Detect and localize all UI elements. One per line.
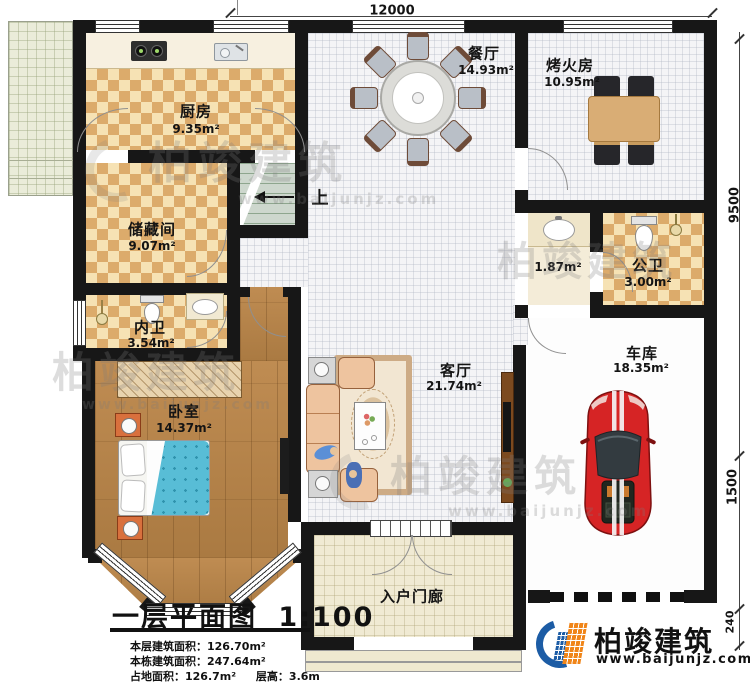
dimension-line-top — [230, 16, 712, 17]
leader-line — [237, 0, 238, 15]
dimension-line-right — [739, 32, 740, 650]
wall — [528, 590, 550, 603]
sofa — [306, 384, 340, 474]
area-info: 本层建筑面积：126.70m² 本栋建筑面积：247.64m² 占地面积：126… — [130, 639, 320, 684]
window — [95, 20, 140, 33]
room-label-private-bath: 内卫 — [134, 321, 166, 336]
window — [213, 20, 289, 33]
bedroom-tv — [280, 438, 289, 494]
chair — [458, 87, 486, 109]
dimension-top: 12000 — [369, 4, 414, 19]
chair — [628, 140, 654, 165]
room-label-living: 客厅 — [440, 364, 472, 379]
wall — [590, 292, 603, 305]
lamp-icon — [315, 476, 330, 491]
dimension-right-lower: 240 — [724, 611, 737, 634]
lamp-icon — [123, 521, 139, 537]
wall — [473, 637, 513, 650]
room-area-bedroom: 14.37m² — [156, 422, 212, 434]
dimension-tick — [707, 8, 718, 19]
chair — [350, 87, 378, 109]
room-label-kitchen: 厨房 — [180, 105, 212, 120]
room-area-fire-room: 10.95m² — [544, 76, 600, 88]
terrace-step-line — [8, 178, 73, 179]
room-area-garage: 18.35m² — [613, 362, 669, 374]
area-info-line3a: 占地面积：126.7m² — [130, 670, 236, 683]
window — [563, 20, 673, 33]
shower-head-icon — [96, 313, 108, 325]
coffee-table — [354, 402, 386, 450]
wall — [515, 305, 528, 318]
wall — [704, 33, 717, 603]
room-area-storage: 9.07m² — [128, 240, 175, 252]
room-label-porch: 入户门廊 — [380, 590, 444, 605]
watermark-subtext: www.baijunjz.com — [448, 504, 649, 519]
chair — [407, 32, 429, 60]
fire-room-table — [588, 96, 660, 142]
wall — [240, 287, 250, 297]
garage-door-dashed — [550, 592, 684, 602]
wall — [684, 590, 717, 603]
area-info-line3b: 层高：3.6m — [256, 670, 320, 683]
sink-icon — [214, 43, 248, 61]
title-underline — [110, 628, 310, 632]
porch-step — [305, 662, 522, 672]
room-label-garage: 车库 — [626, 347, 658, 362]
terrace — [8, 21, 73, 196]
watermark-text: 柏竣建筑 — [148, 142, 348, 186]
room-area-dining: 14.93m² — [458, 64, 514, 76]
porch-step — [305, 650, 522, 662]
shower-hose — [101, 300, 103, 314]
watermark-subtext: www.baijunjz.com — [238, 192, 439, 207]
kitchen-counter — [86, 33, 295, 69]
window — [352, 20, 465, 33]
watermark-text: 柏竣建筑 — [52, 352, 240, 394]
room-label-storage: 储藏间 — [128, 223, 176, 238]
chair — [407, 138, 429, 166]
armchair — [338, 357, 375, 389]
chair — [594, 140, 620, 165]
lamp-icon — [121, 418, 137, 434]
window — [73, 300, 86, 346]
watermark-subtext: www.baijunjz.com — [82, 398, 273, 412]
area-info-line2: 本栋建筑面积：247.64m² — [130, 654, 320, 669]
wall — [288, 287, 301, 522]
lamp-icon — [314, 362, 329, 377]
wall — [283, 287, 293, 297]
area-info-line1: 本层建筑面积：126.70m² — [130, 639, 320, 654]
dimension-right-upper: 9500 — [728, 187, 743, 223]
pillow — [120, 443, 146, 477]
watermark-text: 柏竣建筑 — [497, 242, 677, 282]
room-label-dining: 餐厅 — [468, 47, 500, 62]
living-tv — [503, 402, 511, 452]
wall — [240, 225, 308, 238]
shower-head-icon — [670, 224, 682, 236]
dining-table-center — [412, 92, 424, 104]
terrace-step-line — [8, 160, 73, 161]
watermark-text: 柏竣建筑 — [390, 456, 582, 498]
stove-icon — [131, 41, 167, 61]
wall — [590, 305, 704, 318]
wall — [515, 33, 528, 148]
toilet-tank-icon — [631, 216, 657, 225]
wall — [452, 522, 515, 535]
washbasin-icon — [192, 299, 218, 315]
washbasin-icon — [543, 219, 575, 241]
wall — [515, 200, 704, 213]
pillow — [120, 479, 146, 512]
wall — [314, 637, 354, 650]
person-figure — [330, 447, 338, 455]
hall-floor — [240, 238, 308, 287]
room-label-fire-room: 烤火房 — [546, 59, 594, 74]
room-area-kitchen: 9.35m² — [172, 123, 219, 135]
dimension-right-mid: 1500 — [726, 469, 741, 505]
toilet-tank-icon — [140, 295, 164, 303]
faucet-icon — [555, 216, 562, 220]
floor-plan: 上 — [0, 0, 750, 687]
area-info-line3: 占地面积：126.7m² 层高：3.6m — [130, 669, 320, 684]
room-area-living: 21.74m² — [426, 380, 482, 392]
company-website: www.baijunjz.com — [596, 652, 750, 667]
